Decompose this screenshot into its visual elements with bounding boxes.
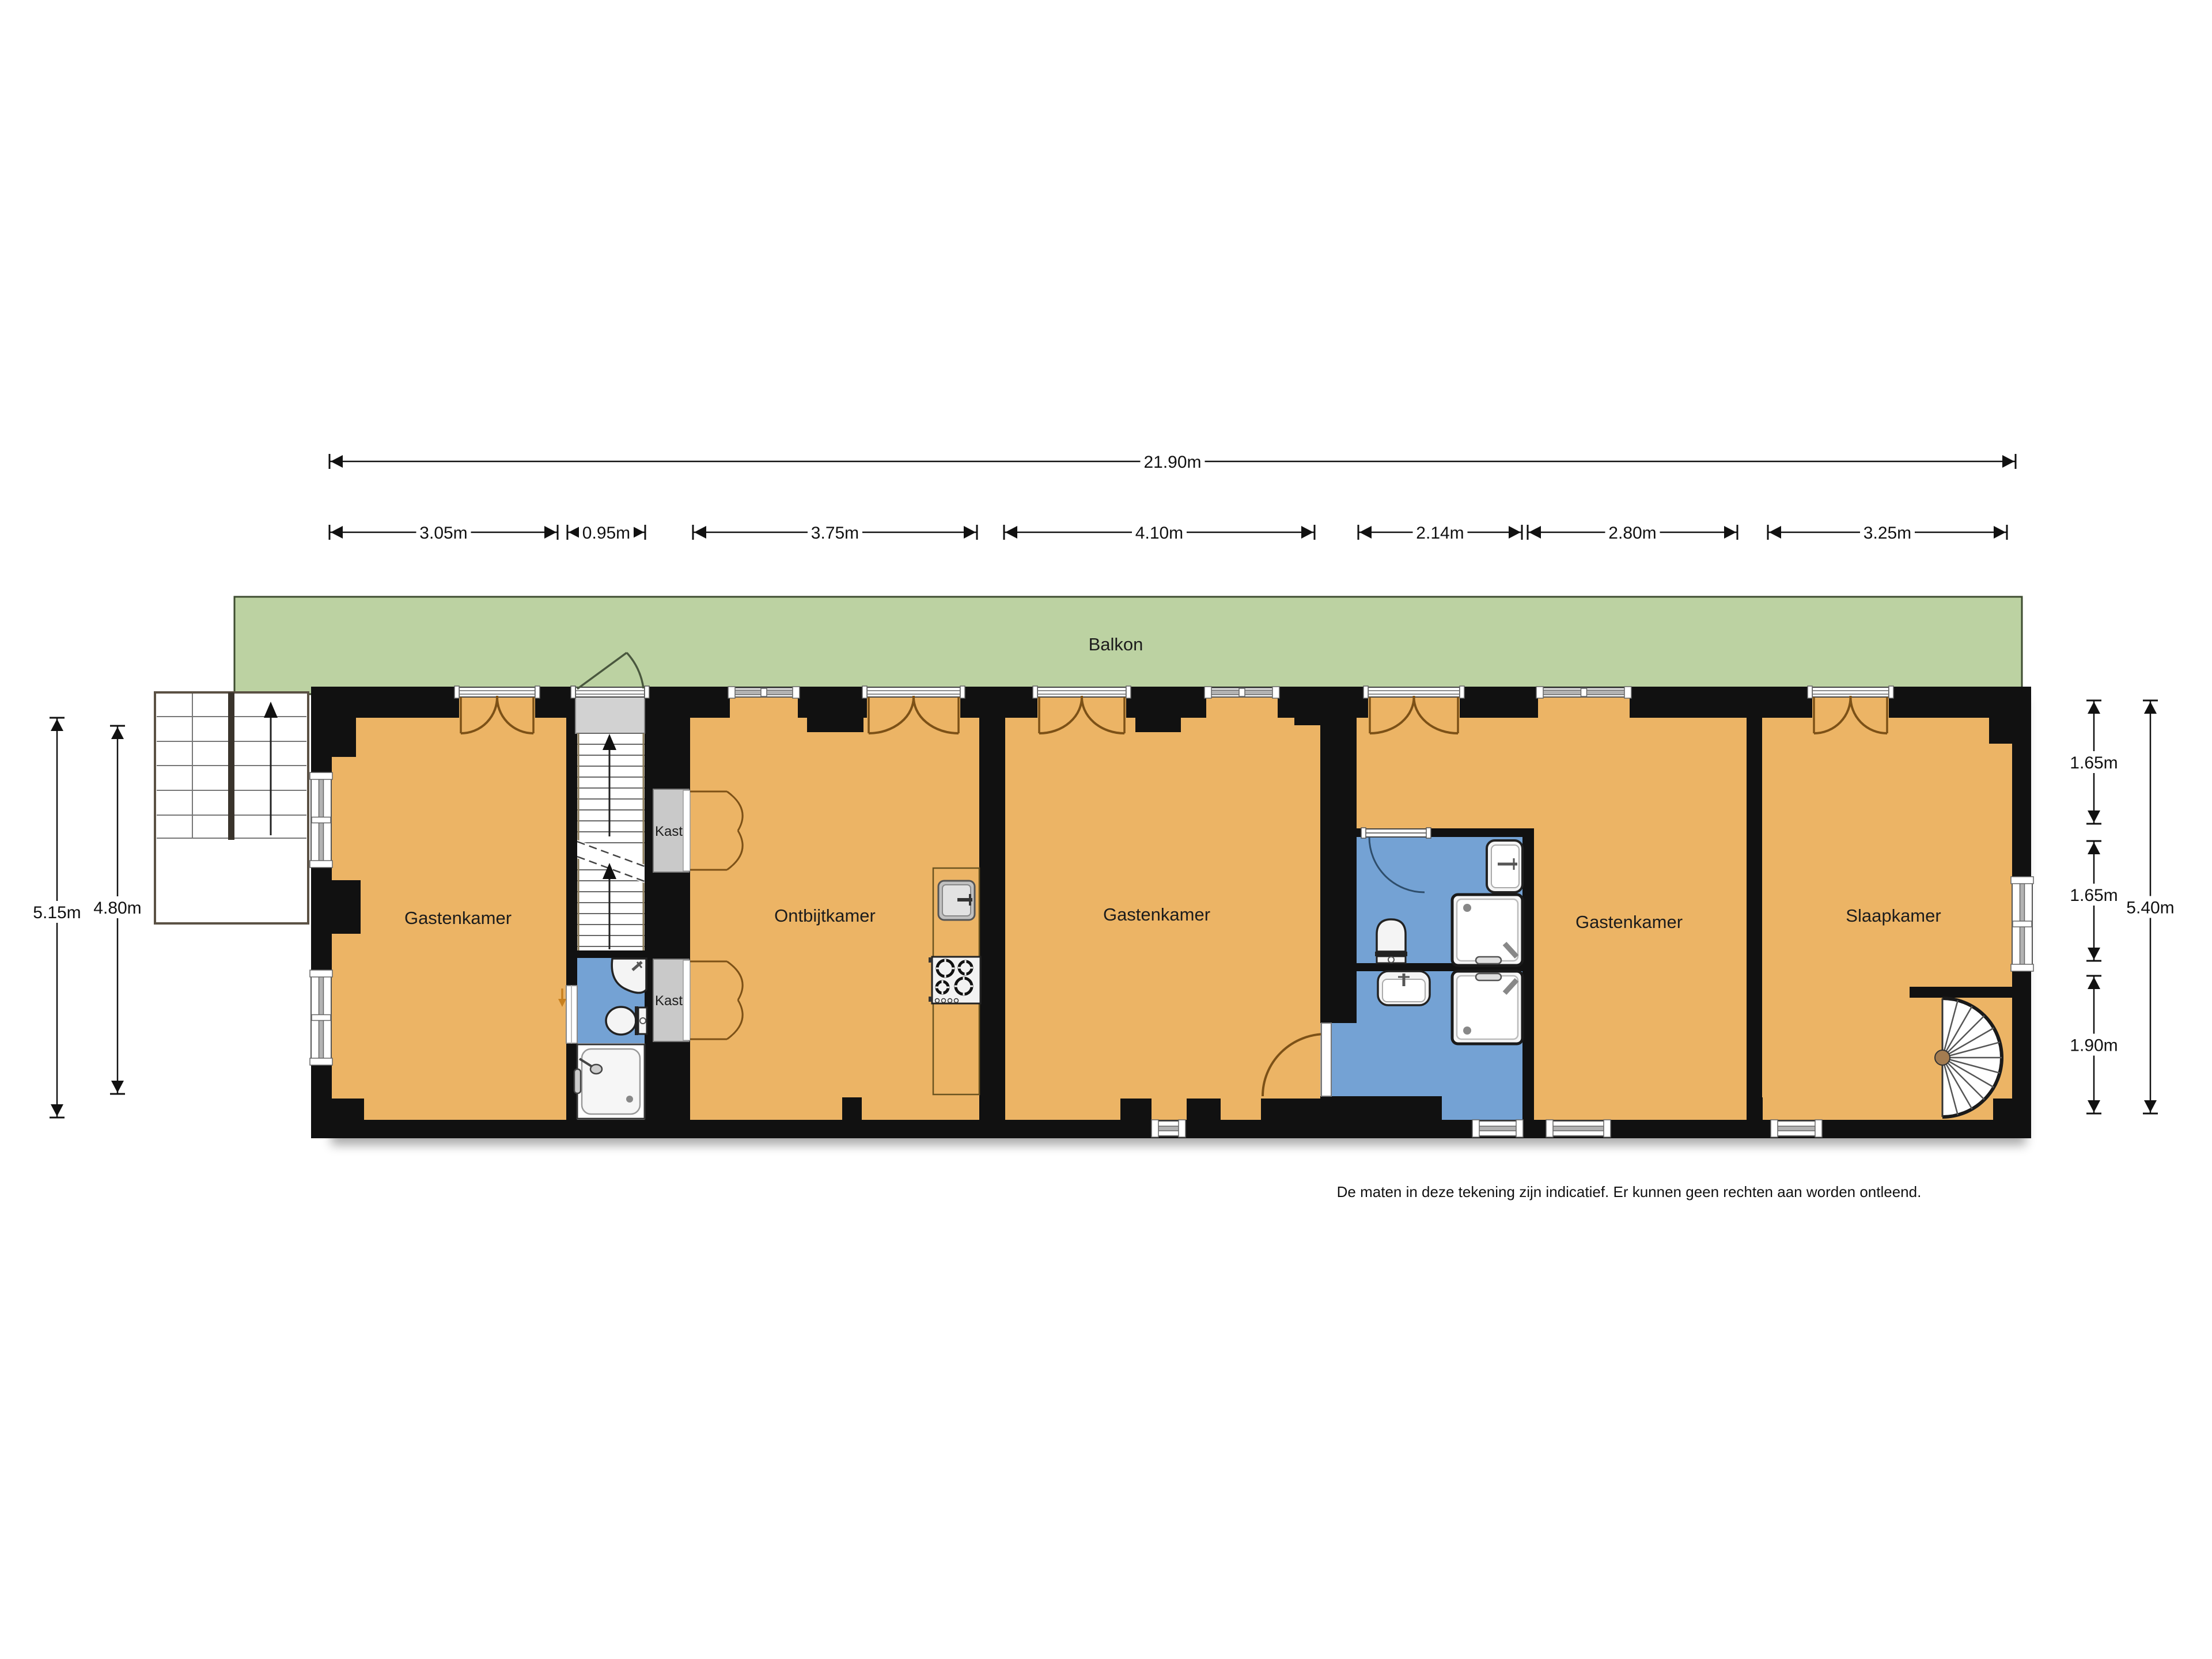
svg-text:Gastenkamer: Gastenkamer [404, 908, 512, 928]
svg-text:0.95m: 0.95m [582, 524, 630, 543]
svg-text:5.40m: 5.40m [2126, 899, 2174, 918]
svg-text:21.90m: 21.90m [1143, 453, 1201, 472]
svg-text:4.80m: 4.80m [93, 899, 141, 918]
svg-text:5.15m: 5.15m [33, 903, 81, 922]
svg-text:4.10m: 4.10m [1135, 524, 1183, 543]
svg-text:Gastenkamer: Gastenkamer [1575, 912, 1683, 932]
svg-text:3.05m: 3.05m [419, 524, 467, 543]
svg-text:Ontbijtkamer: Ontbijtkamer [774, 906, 876, 926]
svg-text:3.25m: 3.25m [1863, 524, 1911, 543]
svg-text:Slaapkamer: Slaapkamer [1846, 906, 1941, 926]
svg-text:Gastenkamer: Gastenkamer [1103, 904, 1210, 925]
svg-text:Kast: Kast [655, 824, 683, 839]
svg-text:Kast: Kast [655, 993, 683, 1009]
svg-text:De maten in deze tekening zijn: De maten in deze tekening zijn indicatie… [1337, 1183, 1922, 1200]
svg-text:1.65m: 1.65m [2070, 753, 2118, 772]
svg-text:Balkon: Balkon [1089, 634, 1143, 654]
svg-text:2.14m: 2.14m [1416, 524, 1464, 543]
svg-text:1.65m: 1.65m [2070, 886, 2118, 905]
svg-text:2.80m: 2.80m [1608, 524, 1656, 543]
svg-text:1.90m: 1.90m [2070, 1036, 2118, 1055]
svg-text:3.75m: 3.75m [811, 524, 859, 543]
